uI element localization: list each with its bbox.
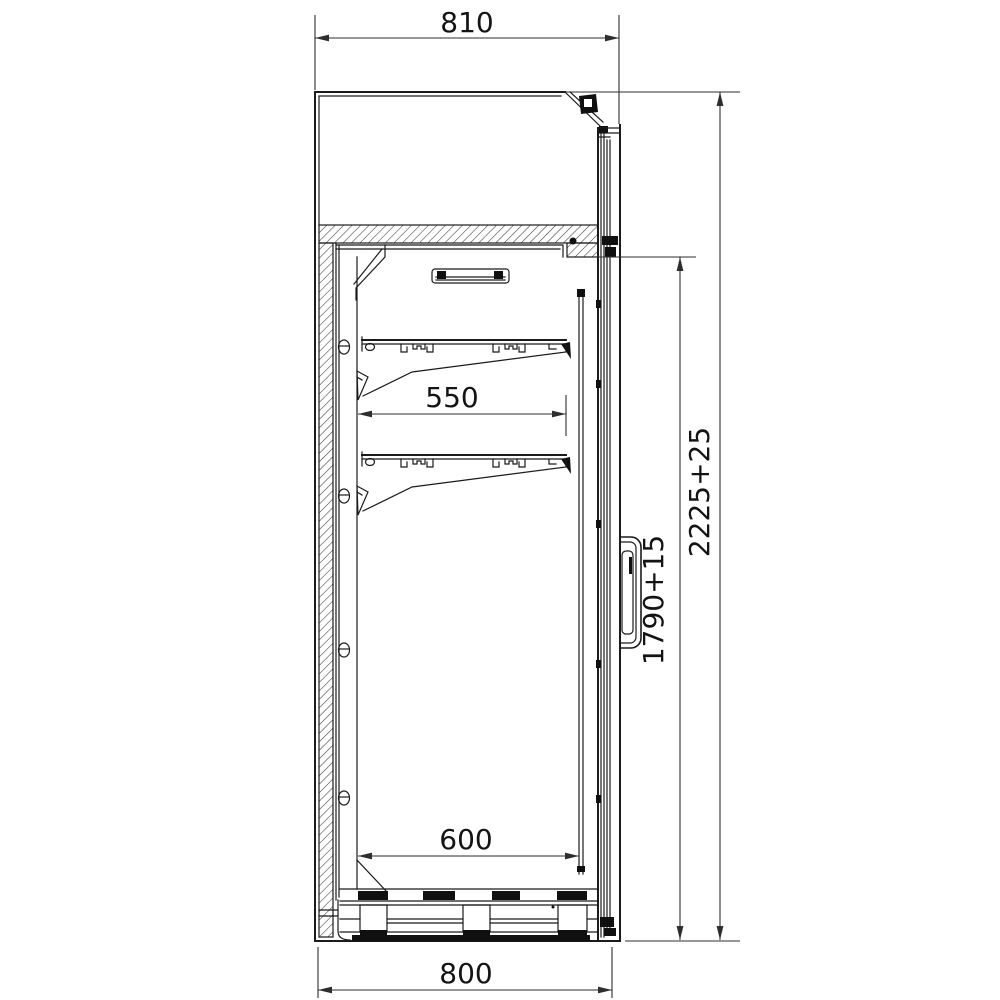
insulation-top bbox=[319, 225, 598, 257]
dimension-label-top-width: 810 bbox=[440, 6, 493, 39]
dimension-base-width: 800 bbox=[318, 947, 612, 998]
cabinet-outline bbox=[315, 92, 620, 941]
wall-pin bbox=[339, 643, 350, 657]
dimension-label-interior-height: 1790+15 bbox=[637, 535, 670, 665]
top-compartment bbox=[319, 92, 608, 225]
floor-corner-slope bbox=[357, 860, 387, 892]
shelf-lower bbox=[357, 452, 571, 515]
dimension-label-shelf-depth: 550 bbox=[425, 381, 478, 414]
technical-drawing: 810 550 600 800 2225+25 1790+15 bbox=[0, 0, 1000, 1000]
dimension-interior-depth: 600 bbox=[358, 823, 579, 856]
ceiling-corner-bracket bbox=[354, 245, 385, 300]
cabinet-section-drawing: 810 550 600 800 2225+25 1790+15 bbox=[0, 0, 1000, 1000]
door-bottom-hinge bbox=[600, 917, 616, 936]
wall-pin bbox=[339, 489, 350, 503]
dimension-label-overall-height: 2225+25 bbox=[683, 427, 716, 557]
dimension-label-interior-depth: 600 bbox=[439, 823, 492, 856]
ceiling-screw bbox=[570, 238, 577, 245]
dimension-overall-height: 2225+25 bbox=[565, 92, 740, 941]
dimension-interior-height: 1790+15 bbox=[598, 257, 696, 940]
wall-pin bbox=[339, 791, 350, 805]
wall-mounting-pins bbox=[339, 340, 350, 805]
door-top-hinge bbox=[602, 236, 618, 245]
dimension-top-width: 810 bbox=[315, 6, 619, 124]
base-frame bbox=[340, 860, 598, 941]
dimension-shelf-depth: 550 bbox=[358, 381, 566, 436]
wall-pin bbox=[339, 340, 350, 354]
interior-lamp bbox=[432, 269, 509, 283]
dimension-label-base-width: 800 bbox=[439, 957, 492, 990]
door-gasket bbox=[577, 289, 585, 874]
